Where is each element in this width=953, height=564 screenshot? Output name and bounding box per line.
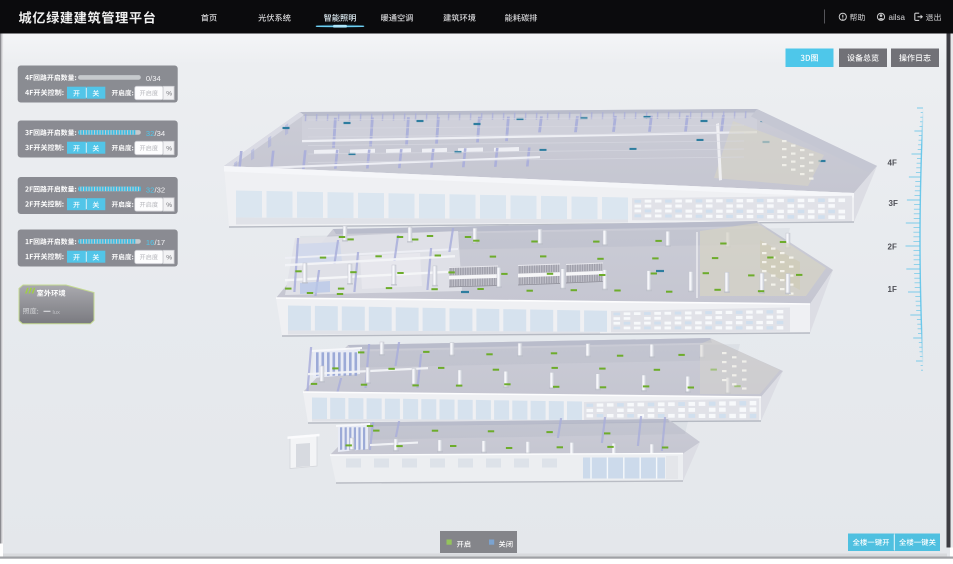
svg-text:/32: /32 xyxy=(155,186,166,195)
svg-text:%: % xyxy=(166,255,172,262)
svg-text:3F: 3F xyxy=(889,199,898,208)
svg-text:%: % xyxy=(166,146,172,153)
svg-text:32: 32 xyxy=(146,129,154,138)
svg-text:1F: 1F xyxy=(888,285,897,294)
svg-text:ailsa: ailsa xyxy=(889,13,906,22)
svg-text:4F: 4F xyxy=(888,159,897,168)
svg-text:/34: /34 xyxy=(155,129,166,138)
svg-text:lux: lux xyxy=(53,310,61,316)
svg-text:%: % xyxy=(166,202,172,209)
svg-text:32: 32 xyxy=(146,186,154,195)
svg-text:2F: 2F xyxy=(888,243,897,252)
svg-text:%: % xyxy=(166,91,172,98)
svg-text:/17: /17 xyxy=(155,238,166,247)
svg-text:0/34: 0/34 xyxy=(146,74,161,83)
svg-text:16: 16 xyxy=(146,238,154,247)
